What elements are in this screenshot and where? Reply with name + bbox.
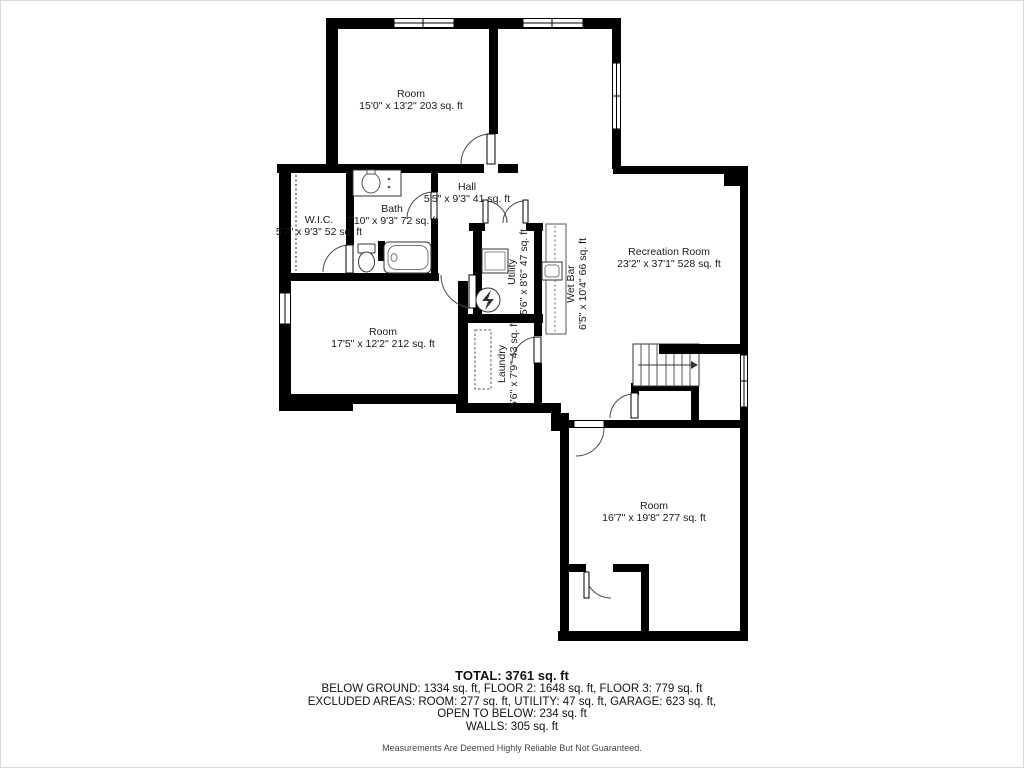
room-label-recreation-room: Recreation Room 23'2" x 37'1" 528 sq. ft [617,246,721,270]
window [613,63,621,129]
room-name: W.I.C. [276,214,362,226]
electrical-panel-icon [476,288,500,312]
room-label-bottom-room: Room 16'7" x 19'8" 277 sq. ft [602,500,706,524]
room-name: Room [359,88,463,100]
door [584,572,611,598]
floor-plan-page: Room 15'0" x 13'2" 203 sq. ft Hall 5'5" … [0,0,1024,768]
disclaimer-text: Measurements Are Deemed Highly Reliable … [1,743,1023,753]
room-dimensions: 6'5" x 10'4" 66 sq. ft [577,238,589,330]
laundry-counter [475,330,491,389]
room-name: Recreation Room [617,246,721,258]
room-label-laundry: Laundry 5'6" x 7'9" 43 sq. ft [496,321,520,407]
room-label-utility: Utility 5'6" x 8'6" 47 sq. ft [506,229,530,315]
door [610,393,638,418]
room-label-hall: Hall 5'5" x 9'3" 41 sq. ft [424,181,510,205]
room-name: Room [602,500,706,512]
door [323,245,353,273]
room-name: Wet Bar [565,238,577,330]
room-dimensions: 17'5" x 12'2" 212 sq. ft [331,338,435,350]
room-name: Laundry [496,321,508,407]
area-summary: TOTAL: 3761 sq. ft BELOW GROUND: 1334 sq… [1,669,1023,753]
bathroom-vanity-sink [353,170,401,196]
water-heater [482,249,508,273]
room-label-wet-bar: Wet Bar 6'5" x 10'4" 66 sq. ft [565,238,589,330]
excluded-areas: EXCLUDED AREAS: ROOM: 277 sq. ft, UTILIT… [1,696,1023,709]
room-dimensions: 16'7" x 19'8" 277 sq. ft [602,512,706,524]
room-label-top-room: Room 15'0" x 13'2" 203 sq. ft [359,88,463,112]
total-area: TOTAL: 3761 sq. ft [1,669,1023,683]
window [741,355,748,407]
window [280,293,291,324]
room-dimensions: 5'6" x 8'6" 47 sq. ft [518,229,530,315]
room-dimensions: 5'6" x 7'9" 43 sq. ft [508,321,520,407]
room-label-middle-room: Room 17'5" x 12'2" 212 sq. ft [331,326,435,350]
window [523,19,583,28]
walls-area: WALLS: 305 sq. ft [1,721,1023,734]
toilet [358,244,375,272]
room-name: Utility [506,229,518,315]
open-to-below-area: OPEN TO BELOW: 234 sq. ft [1,708,1023,721]
staircase [633,344,748,386]
wet-bar-counter [542,224,566,334]
room-name: Room [331,326,435,338]
door [574,421,604,457]
room-dimensions: 23'2" x 37'1" 528 sq. ft [617,258,721,270]
room-dimensions: 15'0" x 13'2" 203 sq. ft [359,100,463,112]
room-dimensions: 5'7" x 9'3" 52 sq. ft [276,226,362,238]
door [461,134,495,164]
bathtub [384,242,431,273]
window [394,19,454,28]
room-name: Hall [424,181,510,193]
floor-areas: BELOW GROUND: 1334 sq. ft, FLOOR 2: 1648… [1,683,1023,696]
room-label-wic: W.I.C. 5'7" x 9'3" 52 sq. ft [276,214,362,238]
